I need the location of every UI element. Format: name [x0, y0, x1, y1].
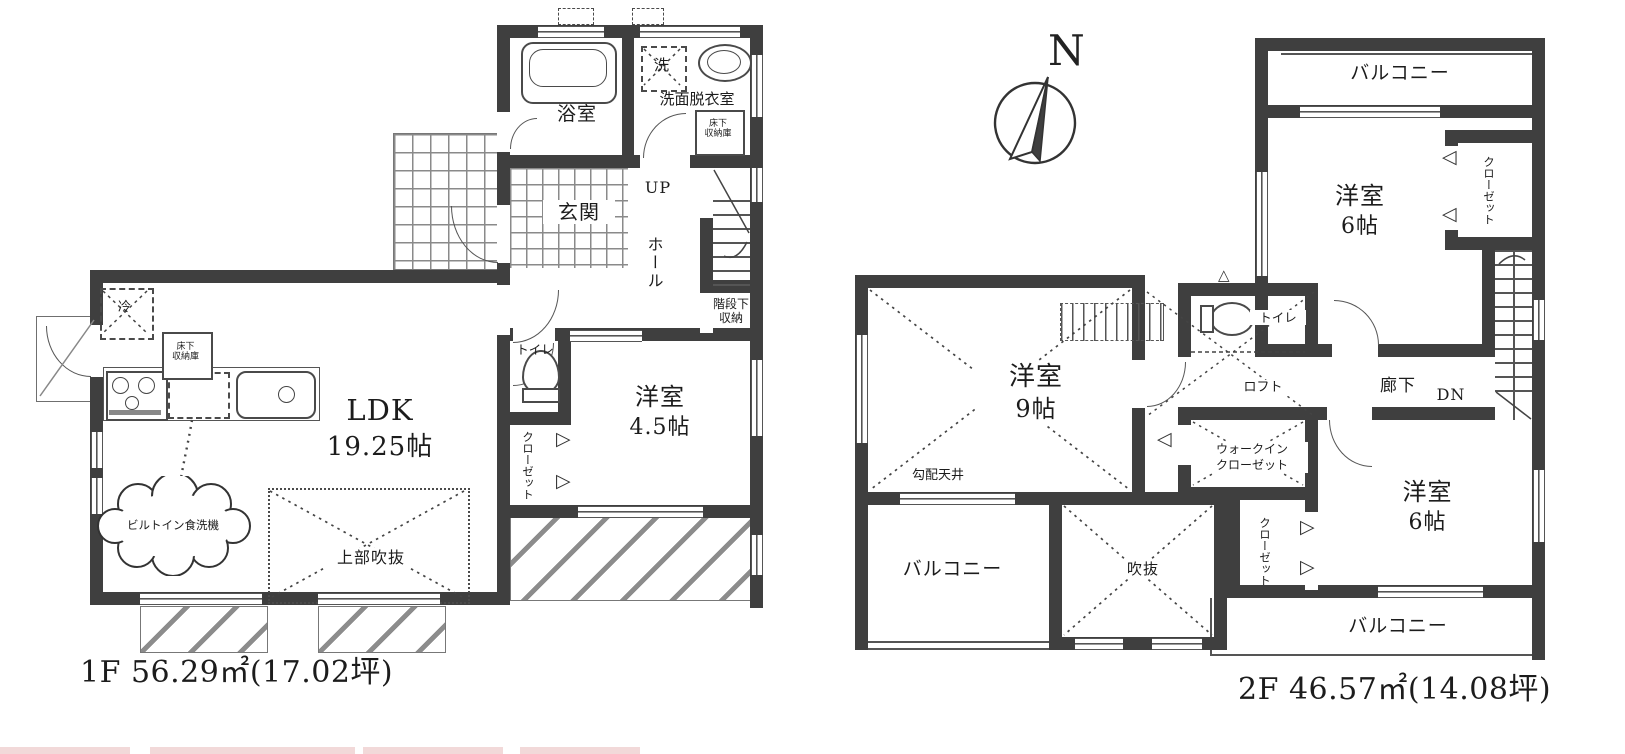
corridor-label: 廊下 — [1370, 376, 1426, 397]
closet-a-door-marker: ◁ — [1442, 148, 1457, 167]
wall — [1178, 407, 1318, 420]
ldk-left-window-upper — [91, 432, 103, 468]
wall — [1178, 487, 1318, 500]
loft-label: ロフト — [1232, 380, 1294, 396]
room6b-door-opening — [1327, 407, 1372, 420]
ldk-deck-window-right — [318, 593, 440, 605]
balcony-left-label: バルコニー — [885, 558, 1020, 581]
stair-storage-label: 階段下収納 — [703, 298, 759, 326]
sloped-ceiling-label: 勾配天井 — [898, 468, 978, 484]
room6a-door-swing — [1334, 300, 1379, 345]
wall — [1445, 237, 1532, 250]
hall-label: ホール — [644, 222, 664, 304]
balcony-top-edge — [1281, 53, 1532, 55]
dn-label: DN — [1428, 385, 1474, 405]
toilet-label-1f: トイレ — [512, 342, 558, 357]
balcony-top-window — [1300, 106, 1440, 118]
west45-label: 洋室4.5帖 — [600, 383, 720, 442]
closet-b-door-marker: ▷ — [1300, 558, 1315, 577]
ldk-label: LDK19.25帖 — [300, 393, 460, 464]
front-door-opening — [497, 205, 510, 263]
bathtub-inner — [529, 49, 607, 87]
wall — [622, 25, 634, 155]
stairs-1f — [713, 200, 750, 292]
underfloor-storage-label: 床下収納庫 — [697, 119, 739, 140]
deck-hatch-right — [318, 606, 446, 653]
wall — [1532, 38, 1545, 660]
wall — [855, 275, 1145, 288]
fridge-label: 冷 — [112, 300, 138, 316]
loft-door-swing — [1147, 362, 1186, 407]
stove-burner — [125, 396, 139, 410]
hall-ldk-door-opening — [497, 285, 510, 335]
washroom-sink-inner — [707, 50, 741, 74]
wall — [497, 155, 763, 168]
closet-a-label: クローゼット — [1482, 148, 1496, 232]
terrace-hatch — [510, 517, 752, 601]
up-label: UP — [636, 178, 680, 198]
room9-left-window — [856, 335, 868, 443]
wall — [90, 270, 510, 283]
open-above-label: 上部吹抜 — [320, 548, 422, 568]
stove-burner — [138, 377, 155, 394]
wall — [1255, 38, 1545, 51]
room6b-label: 洋室6帖 — [1375, 478, 1480, 537]
scan-artifact-strip — [150, 747, 355, 754]
scan-artifact-strip — [0, 747, 130, 754]
void-window-right — [1152, 638, 1202, 650]
terrace-side-window — [751, 535, 763, 575]
wic-door-opening — [1178, 425, 1191, 465]
dishwasher-trail — [181, 420, 192, 478]
washroom-door-swing — [643, 113, 686, 158]
washroom-window — [640, 26, 740, 38]
void-window-left — [1075, 638, 1123, 650]
stove-base — [109, 410, 161, 415]
closet-b-label: クローゼット — [1258, 512, 1272, 590]
wic-door-marker: ◁ — [1157, 430, 1172, 449]
wic-label: ウォークインクローゼット — [1196, 442, 1308, 473]
kitchen-underfloor-label: 床下収納庫 — [164, 342, 207, 363]
closet-door-marker: ▷ — [556, 430, 571, 449]
bath-label: 浴室 — [545, 103, 609, 126]
west45-terrace-window — [578, 506, 703, 518]
room6a-left-window — [1256, 172, 1268, 276]
ldk-deck-window-left — [140, 593, 262, 605]
room9-balcony-window — [900, 493, 1015, 505]
wall — [1178, 283, 1318, 296]
loft-door-opening — [1132, 360, 1145, 408]
floorplan-scan: ▷ ▷ — [0, 0, 1625, 754]
wall — [855, 275, 868, 650]
floor2-area-label: 2F 46.57㎡(14.08坪) — [1238, 672, 1578, 709]
balcony-bottom-label: バルコニー — [1328, 615, 1468, 638]
deck-hatch-left — [140, 606, 268, 653]
wall — [1178, 283, 1191, 357]
toilet2f-bowl-icon — [1210, 302, 1254, 336]
closet-label-1f: クローゼット — [521, 428, 535, 502]
north-arrow: N — [970, 25, 1100, 175]
scan-artifact-strip — [520, 747, 640, 754]
closet-a-door-marker: ◁ — [1442, 205, 1457, 224]
stove-burner — [112, 377, 129, 394]
toilet2f-tank-icon — [1200, 305, 1214, 333]
west45-side-window — [751, 360, 763, 436]
wall — [1214, 492, 1227, 650]
washroom-label: 洗面脱衣室 — [634, 90, 760, 108]
scan-artifact-strip — [363, 747, 503, 754]
wall — [558, 341, 571, 418]
stairs-right-window — [1533, 300, 1545, 340]
wall — [1482, 250, 1495, 357]
washer-label: 洗 — [649, 56, 675, 74]
wall — [1049, 492, 1062, 650]
wall — [1227, 492, 1240, 598]
dishwasher-label: ビルトイン食洗機 — [103, 518, 243, 532]
toilet-label-2f: トイレ — [1250, 310, 1306, 325]
loft-ladder-icon — [1060, 303, 1164, 341]
room6b-door-swing — [1329, 420, 1372, 467]
stairs-divider — [1513, 250, 1515, 420]
room9-label: 洋室9帖 — [975, 362, 1097, 425]
hall-side-window — [751, 168, 763, 202]
balcony-top-label: バルコニー — [1330, 62, 1470, 85]
vent-box — [558, 8, 594, 25]
vent-triangle: △ — [1218, 268, 1230, 283]
bath-door-opening — [497, 112, 510, 152]
wall — [497, 412, 571, 425]
room6a-door-opening — [1332, 344, 1378, 357]
void-label: 吹抜 — [1112, 560, 1174, 578]
sink-drain — [278, 386, 295, 403]
toilet-tank-icon — [522, 388, 560, 403]
north-label: N — [1048, 26, 1085, 75]
floor1-area-label: 1F 56.29㎡(17.02坪) — [80, 655, 410, 692]
closet-door-marker: ▷ — [556, 472, 571, 491]
genkan-label: 玄関 — [543, 200, 615, 224]
west45-sliding-door — [570, 330, 642, 342]
bath-window — [538, 26, 604, 38]
balcony-left-edge — [868, 641, 1049, 650]
room6b-right-window — [1533, 470, 1545, 542]
room6b-balcony-window — [1378, 586, 1483, 598]
room6a-label: 洋室6帖 — [1310, 182, 1410, 241]
closet-b-door-marker: ▷ — [1300, 518, 1315, 537]
bath-door-swing — [510, 118, 537, 149]
corridor-stairs-opening — [1482, 357, 1495, 407]
wall — [1445, 130, 1532, 143]
open-above-area — [268, 488, 470, 604]
vent-box — [632, 8, 664, 25]
